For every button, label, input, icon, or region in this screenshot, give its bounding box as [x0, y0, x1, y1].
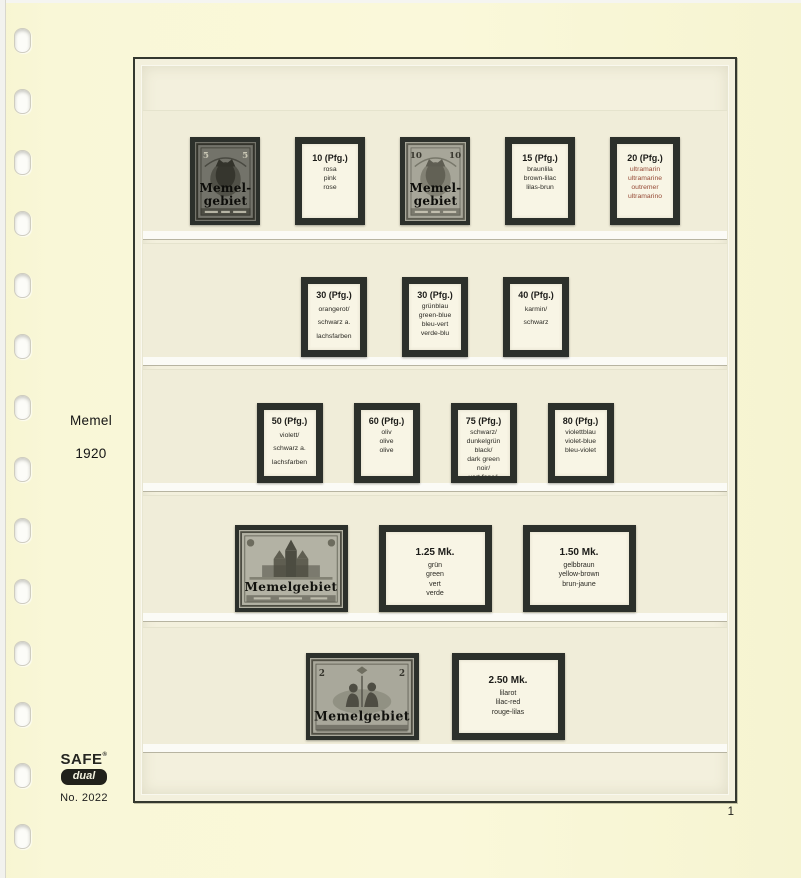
stamp-image: Memelgebiet — [239, 530, 343, 608]
color-name: rouge-lilas — [492, 708, 524, 717]
punch-hole — [14, 457, 31, 482]
punch-hole — [14, 334, 31, 359]
label-mount: 75 (Pfg.)schwarz/dunkelgrünblack/dark gr… — [451, 403, 517, 483]
label-mount: 15 (Pfg.)braunlilabrown-lilaclilas-brun — [505, 137, 575, 225]
stamp-image: 5 5 Memel- gebiet — [195, 142, 256, 221]
item-number: No. 2022 — [44, 792, 124, 804]
year-label: 1920 — [38, 446, 144, 461]
denomination: 1.50 Mk. — [560, 547, 599, 558]
album-frame: 5 5 Memel- gebiet 10 (Pfg.)rosapinkrose … — [133, 57, 737, 803]
color-names: grünblaugreen-bluebleu-vertverde-blu — [419, 303, 452, 339]
label-mount: 30 (Pfg.)grünblaugreen-bluebleu-vertverd… — [402, 277, 468, 357]
stamp-placeholder-label: 30 (Pfg.)grünblaugreen-bluebleu-vertverd… — [409, 284, 461, 350]
color-name: lilac-red — [492, 698, 524, 707]
color-name: olive — [380, 438, 394, 447]
color-name: ultramarino — [628, 193, 662, 202]
stamp-value: 5 — [242, 151, 248, 161]
mounting-strip-1: 5 5 Memel- gebiet 10 (Pfg.)rosapinkrose … — [143, 110, 727, 240]
denomination: 80 (Pfg.) — [563, 416, 599, 426]
stamp-placeholder-label: 80 (Pfg.)violettblauviolet-bluebleu-viol… — [555, 410, 607, 476]
color-name: schwarz a. — [316, 316, 351, 329]
safe-logo: SAFE® — [55, 752, 113, 767]
color-name: rosa — [323, 166, 336, 175]
color-name: green — [426, 570, 444, 579]
stamp-placeholder-label: 40 (Pfg.)karmin/schwarz — [510, 284, 562, 350]
color-name: karmin/ — [524, 303, 549, 316]
stamp-value: 5 — [202, 151, 208, 161]
color-names: braunlilabrown-lilaclilas-brun — [524, 166, 556, 193]
color-name: outremer — [628, 184, 662, 193]
mounting-strip-4: Memelgebiet 1.25 Mk.grüngreenvertverde1.… — [143, 495, 727, 622]
color-name: braunlila — [524, 166, 556, 175]
dual-logo: dual — [61, 769, 107, 785]
overprint-line: gebiet — [203, 194, 247, 208]
color-names: violett/schwarz a.lachsfarben — [272, 429, 307, 469]
color-name: black/ — [467, 447, 501, 456]
color-name: ultramarine — [628, 175, 662, 184]
color-name: dark green — [467, 456, 501, 465]
color-names: grüngreenvertverde — [426, 561, 444, 599]
color-name: rose — [323, 184, 336, 193]
corner-ornament — [328, 539, 335, 546]
color-name: lachsfarben — [272, 456, 307, 469]
punch-hole — [14, 89, 31, 114]
color-name: ultramarin — [628, 166, 662, 175]
color-names: ultramarinultramarineoutremerultramarino — [628, 166, 662, 202]
color-names: orangerot/schwarz a.lachsfarben — [316, 303, 351, 343]
stamp-mount: 10 10 Memel- gebiet — [400, 137, 470, 225]
color-name: orangerot/ — [316, 303, 351, 316]
color-name: violett/ — [272, 429, 307, 442]
denomination: 50 (Pfg.) — [272, 416, 308, 426]
mounting-strip-5: 2 2 Memelgebiet 2.50 Mk.lilarotlilac-red… — [143, 627, 727, 753]
punch-hole — [14, 273, 31, 298]
overprint-line: Memelgebiet — [314, 708, 410, 723]
color-name: brun-jaune — [559, 580, 600, 589]
label-mount: 60 (Pfg.)olivoliveolive — [354, 403, 420, 483]
color-name: grün — [426, 561, 444, 570]
color-name: schwarz/ — [467, 429, 501, 438]
color-name: verde-blu — [419, 330, 452, 339]
color-name: bleu-vert — [419, 321, 452, 330]
label-mount: 30 (Pfg.)orangerot/schwarz a.lachsfarben — [301, 277, 367, 357]
stamp-placeholder-label: 30 (Pfg.)orangerot/schwarz a.lachsfarben — [308, 284, 360, 350]
color-name: violettblau — [565, 429, 596, 438]
punch-hole — [14, 150, 31, 175]
page-number: 1 — [698, 806, 734, 818]
stamp-image: 2 2 Memelgebiet — [310, 658, 414, 736]
page-heading: Memel 1920 — [38, 413, 144, 461]
color-name: schwarz a. — [272, 442, 307, 455]
label-mount: 2.50 Mk.lilarotlilac-redrouge-lilas — [452, 653, 565, 740]
stamp-placeholder-label: 2.50 Mk.lilarotlilac-redrouge-lilas — [459, 660, 558, 733]
color-name: olive — [380, 447, 394, 456]
stamp-value: 2 — [399, 668, 405, 678]
punch-hole — [14, 641, 31, 666]
scan-edge-left — [0, 0, 6, 878]
color-name: green-blue — [419, 312, 452, 321]
denomination: 30 (Pfg.) — [316, 290, 352, 300]
color-name: schwarz — [524, 316, 549, 329]
color-name: yellow-brown — [559, 570, 600, 579]
denomination: 40 (Pfg.) — [518, 290, 554, 300]
stamp-placeholder-label: 10 (Pfg.)rosapinkrose — [302, 144, 358, 218]
stamp-placeholder-label: 15 (Pfg.)braunlilabrown-lilaclilas-brun — [512, 144, 568, 218]
punch-hole — [14, 211, 31, 236]
stamp-image: 10 10 Memel- gebiet — [405, 142, 466, 221]
stamp-placeholder-label: 60 (Pfg.)olivoliveolive — [361, 410, 413, 476]
stamp-placeholder-label: 1.25 Mk.grüngreenvertverde — [386, 532, 485, 605]
stamp-placeholder-label: 20 (Pfg.)ultramarinultramarineoutremerul… — [617, 144, 673, 218]
stamp-placeholder-label: 50 (Pfg.)violett/schwarz a.lachsfarben — [264, 410, 316, 476]
label-mount: 1.50 Mk.gelbbraunyellow-brownbrun-jaune — [523, 525, 636, 612]
overprint-line: Memel- — [199, 181, 251, 195]
stamp-mount: Memelgebiet — [235, 525, 348, 612]
denomination: 1.25 Mk. — [416, 547, 455, 558]
punch-hole — [14, 28, 31, 53]
color-names: schwarz/dunkelgrünblack/dark greennoir/v… — [467, 429, 501, 476]
denomination: 10 (Pfg.) — [312, 153, 348, 163]
overprint-line: Memelgebiet — [244, 579, 337, 593]
label-mount: 1.25 Mk.grüngreenvertverde — [379, 525, 492, 612]
denomination: 20 (Pfg.) — [627, 153, 663, 163]
color-name: oliv — [380, 429, 394, 438]
punch-hole — [14, 763, 31, 788]
color-name: lilas-brun — [524, 184, 556, 193]
color-names: olivoliveolive — [380, 429, 394, 456]
denomination: 30 (Pfg.) — [417, 290, 453, 300]
stamp-value: 10 — [409, 151, 421, 161]
punch-hole — [14, 395, 31, 420]
color-name: pink — [323, 175, 336, 184]
mounting-strip-2: 30 (Pfg.)orangerot/schwarz a.lachsfarben… — [143, 243, 727, 366]
punch-hole — [14, 702, 31, 727]
label-mount: 10 (Pfg.)rosapinkrose — [295, 137, 365, 225]
color-name: verde — [426, 589, 444, 598]
color-name: violet-blue — [565, 438, 596, 447]
color-names: rosapinkrose — [323, 166, 336, 193]
denomination: 75 (Pfg.) — [466, 416, 502, 426]
punch-hole — [14, 518, 31, 543]
color-name: gelbbraun — [559, 561, 600, 570]
mounting-strip-3: 50 (Pfg.)violett/schwarz a.lachsfarben60… — [143, 369, 727, 492]
color-names: gelbbraunyellow-brownbrun-jaune — [559, 561, 600, 589]
denomination: 15 (Pfg.) — [522, 153, 558, 163]
safe-logo-text: SAFE — [61, 751, 103, 768]
color-name: lachsfarben — [316, 330, 351, 343]
punch-hole — [14, 824, 31, 849]
scan-edge-top — [0, 0, 801, 3]
region-title: Memel — [38, 413, 144, 428]
color-name: bleu-violet — [565, 447, 596, 456]
color-names: lilarotlilac-redrouge-lilas — [492, 689, 524, 717]
color-name: lilarot — [492, 689, 524, 698]
color-names: violettblauviolet-bluebleu-violet — [565, 429, 596, 456]
label-mount: 80 (Pfg.)violettblauviolet-bluebleu-viol… — [548, 403, 614, 483]
stamp-value: 2 — [319, 668, 325, 678]
label-mount: 50 (Pfg.)violett/schwarz a.lachsfarben — [257, 403, 323, 483]
overprint-line: gebiet — [413, 194, 457, 208]
color-name: dunkelgrün — [467, 438, 501, 447]
stamp-placeholder-label: 75 (Pfg.)schwarz/dunkelgrünblack/dark gr… — [458, 410, 510, 476]
color-name: grünblau — [419, 303, 452, 312]
color-name: brown-lilac — [524, 175, 556, 184]
stamp-placeholder-label: 1.50 Mk.gelbbraunyellow-brownbrun-jaune — [530, 532, 629, 605]
denomination: 60 (Pfg.) — [369, 416, 405, 426]
stamp-value: 10 — [449, 151, 461, 161]
punch-hole — [14, 579, 31, 604]
color-name: vert foncé — [467, 474, 501, 476]
stamp-mount: 2 2 Memelgebiet — [306, 653, 419, 740]
stamp-mount: 5 5 Memel- gebiet — [190, 137, 260, 225]
color-name: noir/ — [467, 465, 501, 474]
denomination: 2.50 Mk. — [489, 675, 528, 686]
label-mount: 40 (Pfg.)karmin/schwarz — [503, 277, 569, 357]
corner-ornament — [247, 539, 254, 546]
album-page: Memel 1920 5 5 Memel- gebiet 10 (Pfg.)ro… — [0, 0, 801, 878]
color-names: karmin/schwarz — [524, 303, 549, 330]
allegory-figures — [349, 683, 358, 692]
publisher-brand: SAFE® dual — [55, 752, 113, 785]
color-name: vert — [426, 580, 444, 589]
label-mount: 20 (Pfg.)ultramarinultramarineoutremerul… — [610, 137, 680, 225]
registered-mark: ® — [103, 752, 108, 758]
overprint-line: Memel- — [409, 181, 461, 195]
